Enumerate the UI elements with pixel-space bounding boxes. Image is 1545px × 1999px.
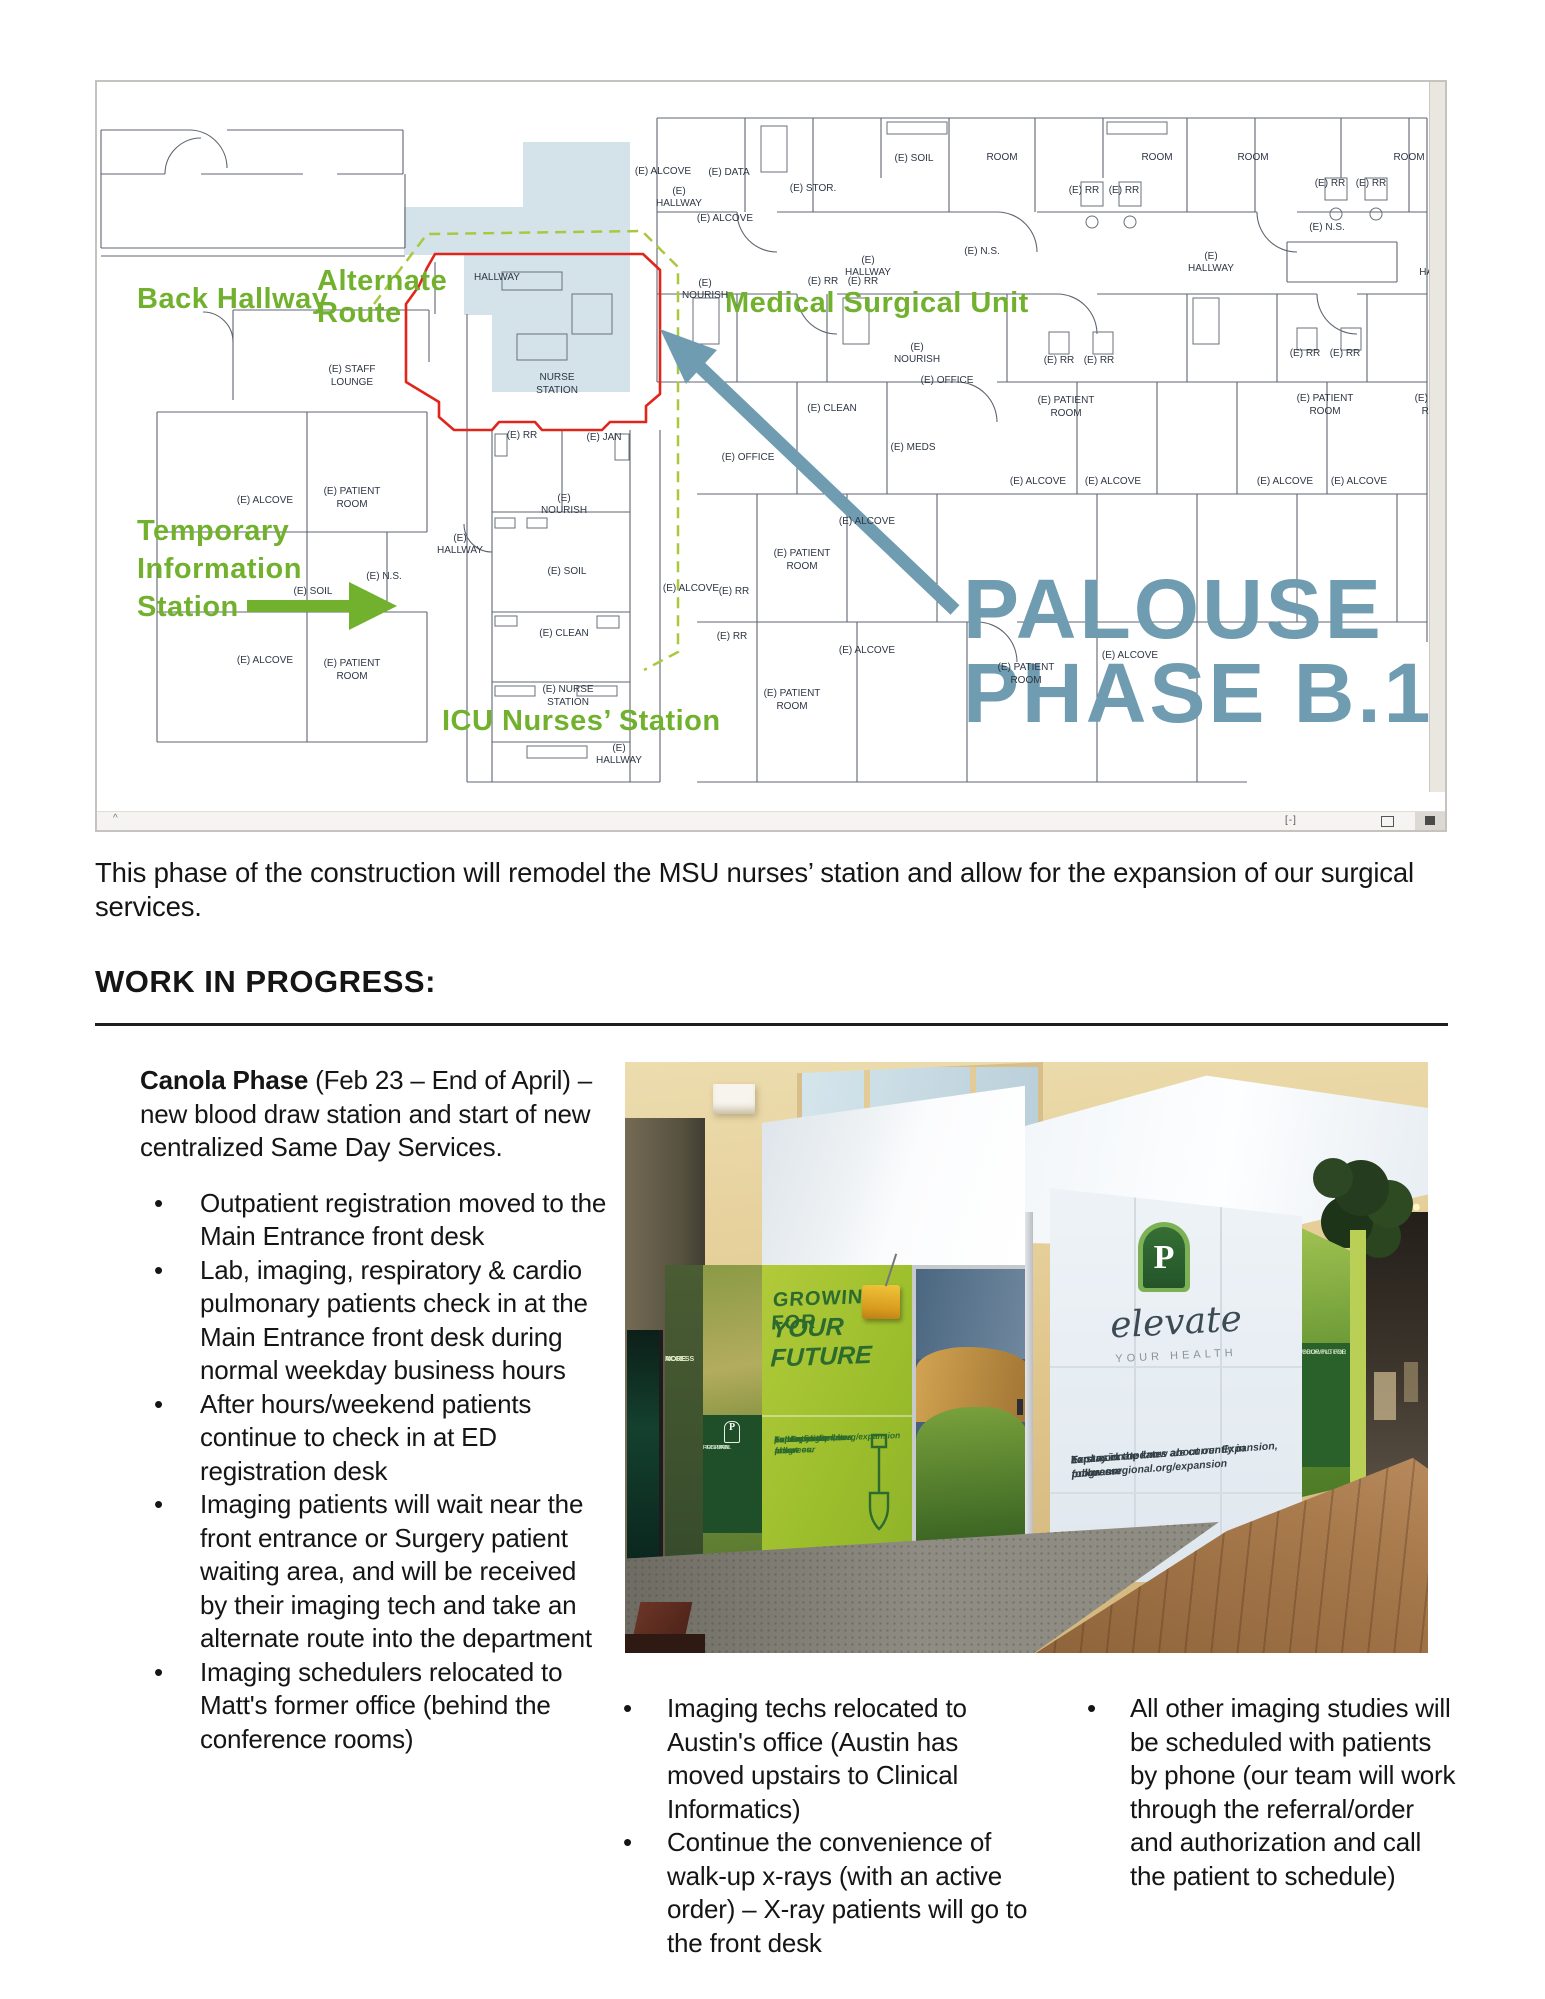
room-label: HALLWAY bbox=[1188, 263, 1234, 274]
room-label: (E) bbox=[698, 278, 711, 289]
room-label: HALLWAY bbox=[474, 272, 520, 283]
list-item: Imaging techs relocated to Austin's offi… bbox=[623, 1692, 1039, 1826]
room-label: (E) STOR. bbox=[790, 183, 836, 194]
room-label: HALLWAY bbox=[437, 545, 483, 556]
room-label: (E) CLEAN bbox=[807, 403, 856, 414]
floorplan-screenshot: Back HallwayAlternateRouteMedical Surgic… bbox=[95, 80, 1447, 832]
panel-seam bbox=[1134, 1180, 1136, 1582]
list-item: Imaging patients will wait near the fron… bbox=[140, 1488, 610, 1656]
panel-seam bbox=[1050, 1492, 1302, 1494]
room-label: (E) bbox=[1204, 251, 1217, 262]
room-label: ROOM bbox=[986, 152, 1017, 163]
room-label: (E) RR bbox=[1044, 355, 1075, 366]
label-phase-b1: PHASE B.1 bbox=[963, 646, 1433, 740]
room-label: (E) RR bbox=[848, 276, 879, 287]
room-label: (E) bbox=[861, 255, 874, 266]
growing-sign-panel: GROWING FOR YOUR FUTURE Expansion update… bbox=[762, 1265, 912, 1562]
room-label: (E) SOIL bbox=[294, 586, 333, 597]
room-label: ROOM bbox=[1393, 152, 1424, 163]
room-label: NOURISH bbox=[894, 354, 940, 365]
distant-light bbox=[1404, 1362, 1418, 1402]
room-label: (E) ALCOVE bbox=[1102, 650, 1158, 661]
room-label: ROOM bbox=[1237, 152, 1268, 163]
yellow-device bbox=[862, 1285, 900, 1319]
plant bbox=[1313, 1158, 1353, 1198]
room-label: (E) ALCOVE bbox=[839, 645, 895, 656]
room-label: (E) RR bbox=[507, 430, 538, 441]
room-label: ROOM bbox=[1141, 152, 1172, 163]
room-label: (E) RR bbox=[1069, 185, 1100, 196]
sign-paragraph: Expansion updates arecurrently in progre… bbox=[774, 1431, 860, 1434]
viewer-toolbar: ^ [-] bbox=[97, 811, 1445, 830]
canola-phase-lead: Canola Phase (Feb 23 – End of April) – n… bbox=[140, 1064, 610, 1165]
label-temporary-information-station: Station bbox=[137, 591, 239, 623]
room-label: NOURISH bbox=[541, 505, 587, 516]
room-label: (E) PATIENT bbox=[998, 662, 1055, 673]
wall-light bbox=[713, 1084, 755, 1114]
room-label: (E) STAFF bbox=[328, 364, 375, 375]
label-alternate-route: Alternate bbox=[317, 265, 447, 297]
room-label: (E) CLEAN bbox=[539, 628, 588, 639]
room-label: NURSE bbox=[539, 372, 574, 383]
middle-bullet-list: Imaging techs relocated to Austin's offi… bbox=[623, 1692, 1039, 1960]
floorplan-drawing: Back HallwayAlternateRouteMedical Surgic… bbox=[97, 82, 1445, 810]
intro-paragraph: This phase of the construction will remo… bbox=[95, 856, 1465, 924]
room-label: (E) ALCOVE bbox=[1331, 476, 1387, 487]
label-palouse: PALOUSE bbox=[963, 562, 1384, 656]
room-label: (E) ALCOVE bbox=[697, 213, 753, 224]
fullscreen-icon[interactable] bbox=[1425, 816, 1435, 825]
sign-title-line2: YOUR FUTURE bbox=[770, 1310, 913, 1373]
elevate-script: elevate bbox=[1049, 1295, 1303, 1349]
left-column: Canola Phase (Feb 23 – End of April) – n… bbox=[140, 1064, 610, 1756]
list-item: Outpatient registration moved to the Mai… bbox=[140, 1187, 610, 1254]
section-heading: WORK IN PROGRESS: bbox=[95, 964, 436, 1000]
label-icu-nurses-station: ICU Nurses’ Station bbox=[442, 705, 721, 737]
label-temporary-information-station: Temporary bbox=[137, 515, 289, 547]
room-label: ROOM bbox=[336, 671, 367, 682]
room-label: (E) RR bbox=[1290, 348, 1321, 359]
door-sky bbox=[916, 1269, 1029, 1359]
left-bullet-list: Outpatient registration moved to the Mai… bbox=[140, 1187, 610, 1757]
panel-hospital-logo: P PULLMAN REGIONAL HOSPITAL bbox=[703, 1415, 762, 1533]
room-label: (E) ALCOVE bbox=[663, 583, 719, 594]
room-label: (E) RR bbox=[1330, 348, 1361, 359]
room-label: (E) N.S. bbox=[1309, 222, 1345, 233]
room-label: (E) PATIENT bbox=[1038, 395, 1095, 406]
grass-panel: GROWING FOR YOUR FUTURE bbox=[1302, 1217, 1350, 1497]
room-label: (E) OFFICE bbox=[722, 452, 775, 463]
room-label: (E) PATIENT bbox=[764, 688, 821, 699]
list-item: Lab, imaging, respiratory & cardio pulmo… bbox=[140, 1254, 610, 1388]
room-label: ROOM bbox=[786, 561, 817, 572]
room-label: (E) RR bbox=[808, 276, 839, 287]
door-handle bbox=[1017, 1399, 1023, 1415]
room-label: (E) bbox=[557, 493, 570, 504]
room-label: (E) PATIENT bbox=[1297, 393, 1354, 404]
room-label: (E) ALCOVE bbox=[1010, 476, 1066, 487]
tv-screen bbox=[627, 1330, 663, 1574]
palouse-hills-door bbox=[912, 1265, 1033, 1565]
label-alternate-route: Route bbox=[317, 297, 402, 329]
room-label: (E) ALCOVE bbox=[635, 166, 691, 177]
room-label: (E) MEDS bbox=[891, 442, 936, 453]
viewer-scrollbar[interactable] bbox=[1429, 82, 1445, 792]
table-edge bbox=[625, 1634, 705, 1653]
room-label: (E) RR bbox=[1084, 355, 1115, 366]
middle-column: Imaging techs relocated to Austin's offi… bbox=[623, 1692, 1039, 1960]
room-label: (E) OFFICE bbox=[921, 375, 974, 386]
room-label: (E) N.S. bbox=[366, 571, 402, 582]
window-icon[interactable] bbox=[1381, 816, 1394, 827]
lime-panel bbox=[1350, 1230, 1366, 1520]
room-label: (E) SOIL bbox=[895, 153, 934, 164]
corner-post bbox=[1025, 1212, 1033, 1557]
section-divider bbox=[95, 1023, 1448, 1026]
room-label: (E) RR bbox=[1356, 178, 1387, 189]
room-label: (E) PATIENT bbox=[774, 548, 831, 559]
caret-icon[interactable]: ^ bbox=[113, 813, 118, 824]
room-label: (E) SOIL bbox=[548, 566, 587, 577]
room-label: STATION bbox=[536, 385, 578, 396]
room-label: ROOM bbox=[1309, 406, 1340, 417]
panel-wheat-photo: P PULLMAN REGIONAL HOSPITAL bbox=[703, 1265, 762, 1562]
list-item: Imaging schedulers relocated to Matt's f… bbox=[140, 1656, 610, 1757]
hospital-logo: P bbox=[1138, 1222, 1190, 1292]
room-label: NOURISH bbox=[682, 290, 728, 301]
room-label: (E) RR bbox=[1315, 178, 1346, 189]
room-label: LOUNGE bbox=[331, 377, 374, 388]
room-label: (E) PATIENT bbox=[324, 658, 381, 669]
zoom-out-icon[interactable]: [-] bbox=[1285, 815, 1297, 826]
label-temporary-information-station: Information bbox=[137, 553, 302, 585]
room-label: (E) bbox=[910, 342, 923, 353]
room-label: STATION bbox=[547, 697, 589, 708]
room-label: ROOM bbox=[336, 499, 367, 510]
room-label: (E) bbox=[453, 533, 466, 544]
list-item: Continue the convenience of walk-up x-ra… bbox=[623, 1826, 1039, 1960]
room-label: (E) bbox=[612, 743, 625, 754]
room-label: (E) ALCOVE bbox=[1257, 476, 1313, 487]
label-back-hallway: Back Hallway bbox=[137, 283, 328, 315]
right-column: All other imaging studies will be schedu… bbox=[1087, 1692, 1463, 1893]
room-label: (E) JAN bbox=[587, 432, 622, 443]
room-label: (E) RR bbox=[717, 631, 748, 642]
room-label: ROOM bbox=[1010, 675, 1041, 686]
room-label: (E) ALCOVE bbox=[1085, 476, 1141, 487]
list-item: All other imaging studies will be schedu… bbox=[1087, 1692, 1463, 1893]
room-label: (E) NURSE bbox=[542, 684, 593, 695]
room-label: (E) N.S. bbox=[964, 246, 1000, 257]
elevate-paragraph: Expansion updates are currently in progr… bbox=[1070, 1439, 1284, 1454]
room-label: ROOM bbox=[1050, 408, 1081, 419]
hospital-logo-letter: P bbox=[1143, 1227, 1185, 1288]
room-label: (E) ALCOVE bbox=[237, 655, 293, 666]
distant-light bbox=[1374, 1372, 1396, 1420]
room-label: (E) RR bbox=[719, 586, 750, 597]
room-label: (E) PATIENT bbox=[324, 486, 381, 497]
room-label: (E) bbox=[672, 186, 685, 197]
construction-photo: P elevate YOUR HEALTH Expansion updates … bbox=[625, 1062, 1428, 1653]
right-bullet-list: All other imaging studies will be schedu… bbox=[1087, 1692, 1463, 1893]
room-label: ROOM bbox=[776, 701, 807, 712]
room-label: HALLWAY bbox=[656, 198, 702, 209]
list-item: After hours/weekend patients continue to… bbox=[140, 1388, 610, 1489]
room-label: (E) ALCOVE bbox=[839, 516, 895, 527]
mini-p-logo: P bbox=[724, 1421, 740, 1443]
room-label: (E) DATA bbox=[708, 167, 750, 178]
panel-seam bbox=[762, 1415, 912, 1417]
grass-mini-sign: GROWING FOR YOUR FUTURE bbox=[1302, 1343, 1350, 1467]
panel-seam bbox=[1220, 1180, 1222, 1582]
room-label: (E) ALCOVE bbox=[237, 495, 293, 506]
canola-phase-title: Canola Phase bbox=[140, 1065, 308, 1095]
shovel-icon bbox=[860, 1431, 900, 1541]
viewer-corner bbox=[1415, 812, 1445, 830]
label-medical-surgical-unit: Medical Surgical Unit bbox=[725, 287, 1029, 319]
room-label: (E) RR bbox=[1109, 185, 1140, 196]
room-label: HALLWAY bbox=[596, 755, 642, 766]
